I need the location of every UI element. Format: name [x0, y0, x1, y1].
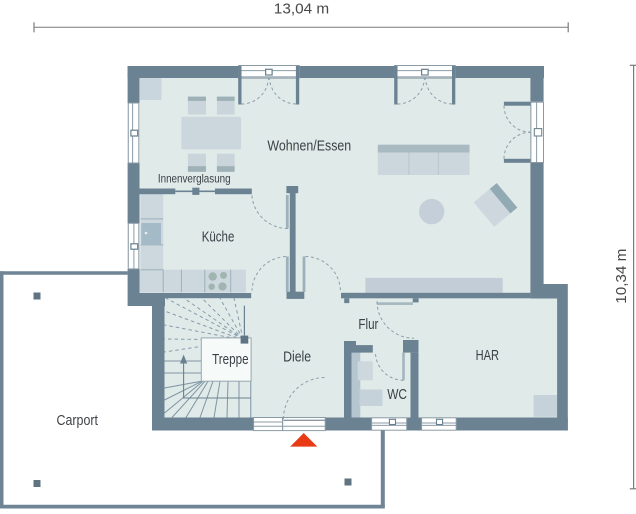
svg-text:Treppe: Treppe	[212, 352, 249, 368]
svg-text:Wohnen/Essen: Wohnen/Essen	[267, 138, 351, 154]
svg-text:Carport: Carport	[57, 413, 99, 429]
svg-text:13,04 m: 13,04 m	[274, 1, 329, 17]
svg-text:Flur: Flur	[358, 317, 378, 333]
svg-text:HAR: HAR	[476, 348, 499, 364]
svg-text:Diele: Diele	[283, 350, 311, 366]
svg-text:Küche: Küche	[202, 230, 235, 246]
svg-text:Innenverglasung: Innenverglasung	[158, 172, 231, 186]
svg-text:10,34 m: 10,34 m	[614, 249, 630, 304]
svg-text:WC: WC	[387, 387, 407, 403]
